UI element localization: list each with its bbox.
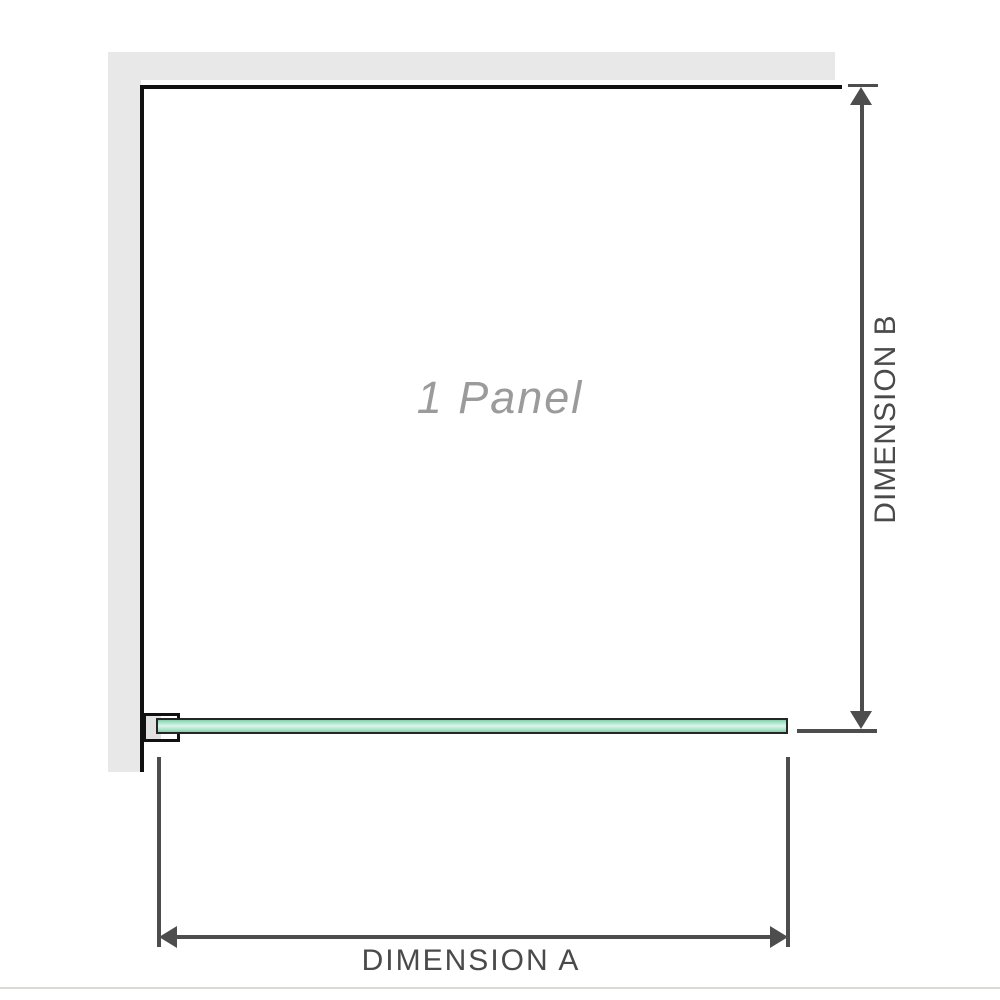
glass-panel-bar — [156, 718, 788, 734]
arrow-down-icon — [850, 711, 872, 729]
dimension-b-label: DIMENSION B — [870, 269, 902, 569]
dimension-a-extension-left — [157, 757, 161, 947]
arrow-up-icon — [850, 87, 872, 105]
dimension-b-tick-bottom — [797, 729, 877, 733]
dimension-b-line — [860, 98, 864, 718]
wall-top-band — [108, 52, 835, 80]
bottom-divider — [0, 987, 1000, 989]
panel-dimension-diagram: 1 Panel DIMENSION B DIMENSION A — [0, 0, 1000, 1000]
dimension-a-label: DIMENSION A — [320, 944, 622, 978]
arrow-left-icon — [159, 926, 177, 948]
wall-left-band — [108, 52, 141, 772]
panel-count-label: 1 Panel — [350, 368, 650, 428]
panel-outline-left — [140, 85, 144, 772]
dimension-a-extension-right — [786, 757, 790, 947]
panel-outline-top — [140, 85, 842, 89]
dimension-a-line — [170, 935, 778, 939]
arrow-right-icon — [770, 926, 788, 948]
